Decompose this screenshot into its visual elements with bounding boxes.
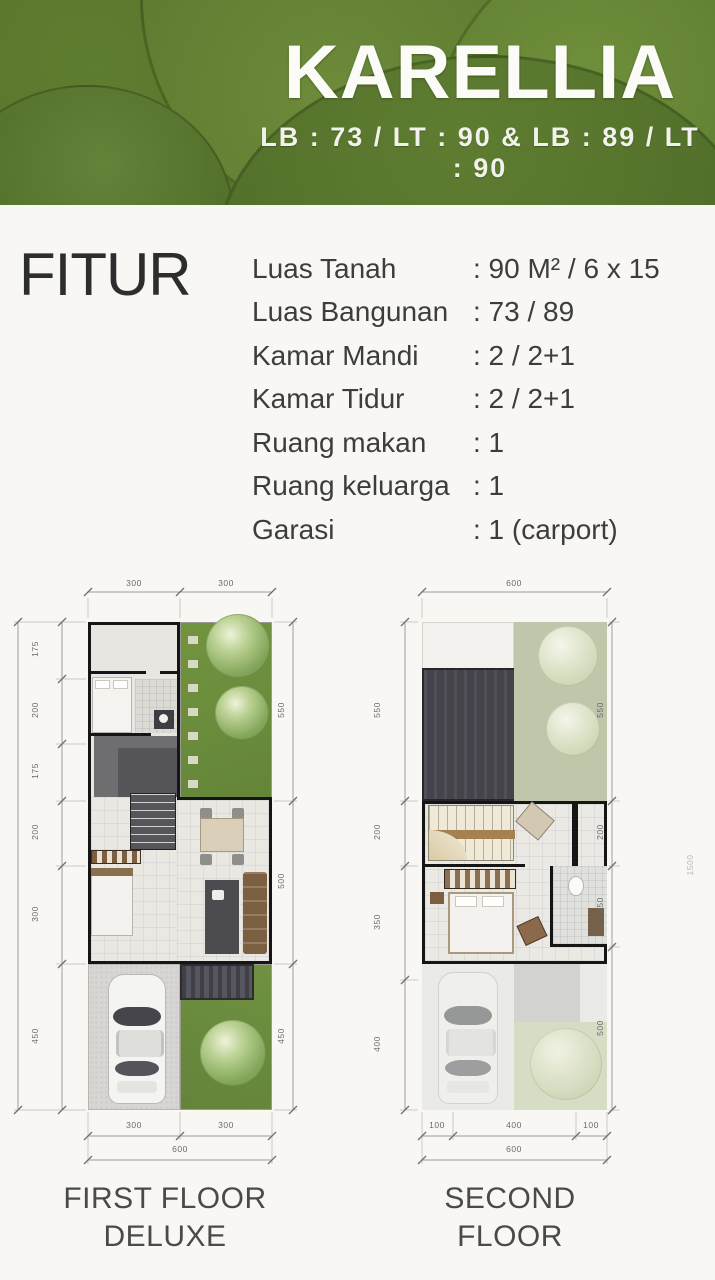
dim-label: 500: [276, 861, 286, 901]
toilet-icon: [568, 876, 584, 896]
car-graphic: [108, 974, 166, 1104]
fitur-heading: FITUR: [19, 240, 191, 309]
pillow-graphic: [113, 680, 128, 689]
dim-label: 300: [114, 1120, 154, 1130]
tree-icon: [206, 614, 270, 678]
faded-tree-icon: [538, 626, 598, 686]
dim-label: 400: [372, 1024, 382, 1064]
interior-wall: [550, 944, 607, 947]
dim-label: 550: [372, 690, 382, 730]
spec-label: Luas Bangunan: [252, 296, 473, 328]
dim-label: 350: [372, 902, 382, 942]
dim-label: 200: [595, 812, 605, 852]
sink-icon: [212, 890, 224, 900]
dim-label: 200: [372, 812, 382, 852]
interior-wall: [572, 801, 578, 867]
dim-label-total: 600: [160, 1144, 200, 1154]
dining-table-graphic: [200, 818, 244, 852]
brand-header: KARELLIA LB : 73 / LT : 90 & LB : 89 / L…: [0, 0, 715, 205]
toilet-icon: [159, 714, 168, 723]
shadow-area: [118, 748, 177, 797]
car-windshield: [444, 1006, 493, 1026]
spec-label: Luas Tanah: [252, 253, 473, 285]
car-trunk: [117, 1081, 157, 1093]
second-floor-plan: [422, 622, 607, 1110]
upper-deck-area: [422, 622, 514, 670]
interior-wall: [91, 671, 146, 674]
pergola-graphic: [180, 964, 254, 1000]
nightstand-graphic: [430, 892, 444, 904]
dim-label: 175: [30, 751, 40, 791]
second-floor-caption: SECOND FLOOR: [390, 1180, 630, 1256]
dim-label-total: 600: [494, 1144, 534, 1154]
feature-spec-list: Luas Tanah: 90 M² / 6 x 15 Luas Bangunan…: [252, 247, 702, 552]
car-rear-window: [115, 1061, 160, 1076]
ghost-car-graphic: [438, 972, 498, 1104]
spec-value: : 73 / 89: [473, 296, 702, 328]
floor-name: FIRST FLOOR: [45, 1180, 285, 1218]
dim-label: 400: [494, 1120, 534, 1130]
stepping-stones: [188, 636, 198, 788]
spec-label: Garasi: [252, 514, 473, 546]
car-roof: [116, 1030, 165, 1057]
spec-value: : 90 M² / 6 x 15: [473, 253, 702, 285]
bed-headboard: [91, 868, 133, 876]
spec-value: : 1: [473, 470, 702, 502]
dim-label: 200: [30, 812, 40, 852]
floor-name: SECOND FLOOR: [390, 1180, 630, 1256]
spec-value: : 2 / 2+1: [473, 340, 702, 372]
spec-row: Ruang keluarga: 1: [252, 465, 702, 509]
dim-label: 300: [114, 578, 154, 588]
dim-label: 175: [30, 629, 40, 669]
spec-row: Luas Tanah: 90 M² / 6 x 15: [252, 247, 702, 291]
spec-row: Luas Bangunan: 73 / 89: [252, 291, 702, 335]
dim-label: 600: [494, 578, 534, 588]
spec-row: Ruang makan: 1: [252, 421, 702, 465]
spec-row: Kamar Tidur: 2 / 2+1: [252, 378, 702, 422]
dim-label: 250: [595, 885, 605, 925]
dim-label: 550: [276, 690, 286, 730]
floor-variant: DELUXE: [45, 1218, 285, 1256]
car-roof: [446, 1029, 496, 1056]
stairs-area: [428, 805, 514, 861]
spec-row: Garasi: 1 (carport): [252, 508, 702, 552]
dim-label: 300: [206, 1120, 246, 1130]
first-floor-caption: FIRST FLOOR DELUXE: [45, 1180, 285, 1256]
bed-graphic: [91, 868, 133, 936]
dim-label-partial: 1500: [685, 845, 695, 885]
spec-value: : 2 / 2+1: [473, 383, 702, 415]
tree-icon: [200, 1020, 266, 1086]
spec-label: Kamar Mandi: [252, 340, 473, 372]
spec-value: : 1 (carport): [473, 514, 702, 546]
dining-chair-icon: [232, 854, 244, 865]
dim-label: 300: [30, 894, 40, 934]
car-rear-window: [445, 1060, 491, 1076]
dim-label: 200: [30, 690, 40, 730]
stairs-area: [130, 793, 176, 850]
dining-chair-icon: [200, 854, 212, 865]
spec-row: Kamar Mandi: 2 / 2+1: [252, 334, 702, 378]
dim-label: 450: [30, 1016, 40, 1056]
dim-label: 100: [571, 1120, 611, 1130]
wardrobe-graphic: [91, 850, 141, 864]
pillow-graphic: [482, 896, 504, 907]
ghost-tree-icon: [530, 1028, 602, 1100]
wardrobe-graphic: [444, 869, 516, 889]
dim-label: 100: [417, 1120, 457, 1130]
faded-tree-icon: [546, 702, 600, 756]
brand-title: KARELLIA: [255, 30, 705, 116]
first-floor-plan: [88, 622, 272, 1110]
tree-icon: [215, 686, 269, 740]
car-windshield: [113, 1007, 160, 1026]
dim-label: 300: [206, 578, 246, 588]
lb-lt-specs: LB : 73 / LT : 90 & LB : 89 / LT : 90: [255, 122, 705, 184]
car-trunk: [447, 1081, 489, 1093]
sofa-graphic: [243, 872, 267, 954]
interior-wall: [425, 864, 525, 867]
interior-wall: [160, 671, 177, 674]
ghost-block: [514, 964, 580, 1022]
dim-label: 500: [595, 1008, 605, 1048]
spec-label: Ruang keluarga: [252, 470, 473, 502]
spec-value: : 1: [473, 427, 702, 459]
pillow-graphic: [95, 680, 110, 689]
spec-label: Ruang makan: [252, 427, 473, 459]
pillow-graphic: [455, 896, 477, 907]
dim-label: 550: [595, 690, 605, 730]
dim-label: 450: [276, 1016, 286, 1056]
brochure-page: KARELLIA LB : 73 / LT : 90 & LB : 89 / L…: [0, 0, 715, 1280]
spec-label: Kamar Tidur: [252, 383, 473, 415]
